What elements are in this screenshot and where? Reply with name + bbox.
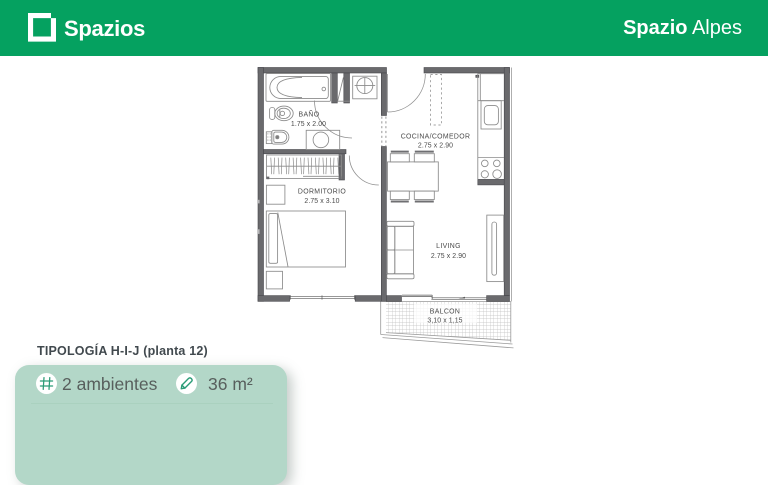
svg-text:2.75 x 2.90: 2.75 x 2.90 (431, 253, 466, 260)
svg-text:BAÑO: BAÑO (299, 109, 320, 118)
svg-text:LIVING: LIVING (436, 243, 461, 250)
svg-text:2.75 x 3.10: 2.75 x 3.10 (304, 198, 339, 205)
svg-text:2.75 x 2.90: 2.75 x 2.90 (418, 143, 453, 150)
svg-text:BALCON: BALCON (430, 308, 460, 315)
svg-text:1.75 x 2.00: 1.75 x 2.00 (291, 121, 326, 128)
svg-text:3,10 x 1,15: 3,10 x 1,15 (427, 318, 462, 325)
svg-text:COCINA/COMEDOR: COCINA/COMEDOR (401, 133, 471, 140)
svg-text:DORMITORIO: DORMITORIO (298, 189, 346, 196)
